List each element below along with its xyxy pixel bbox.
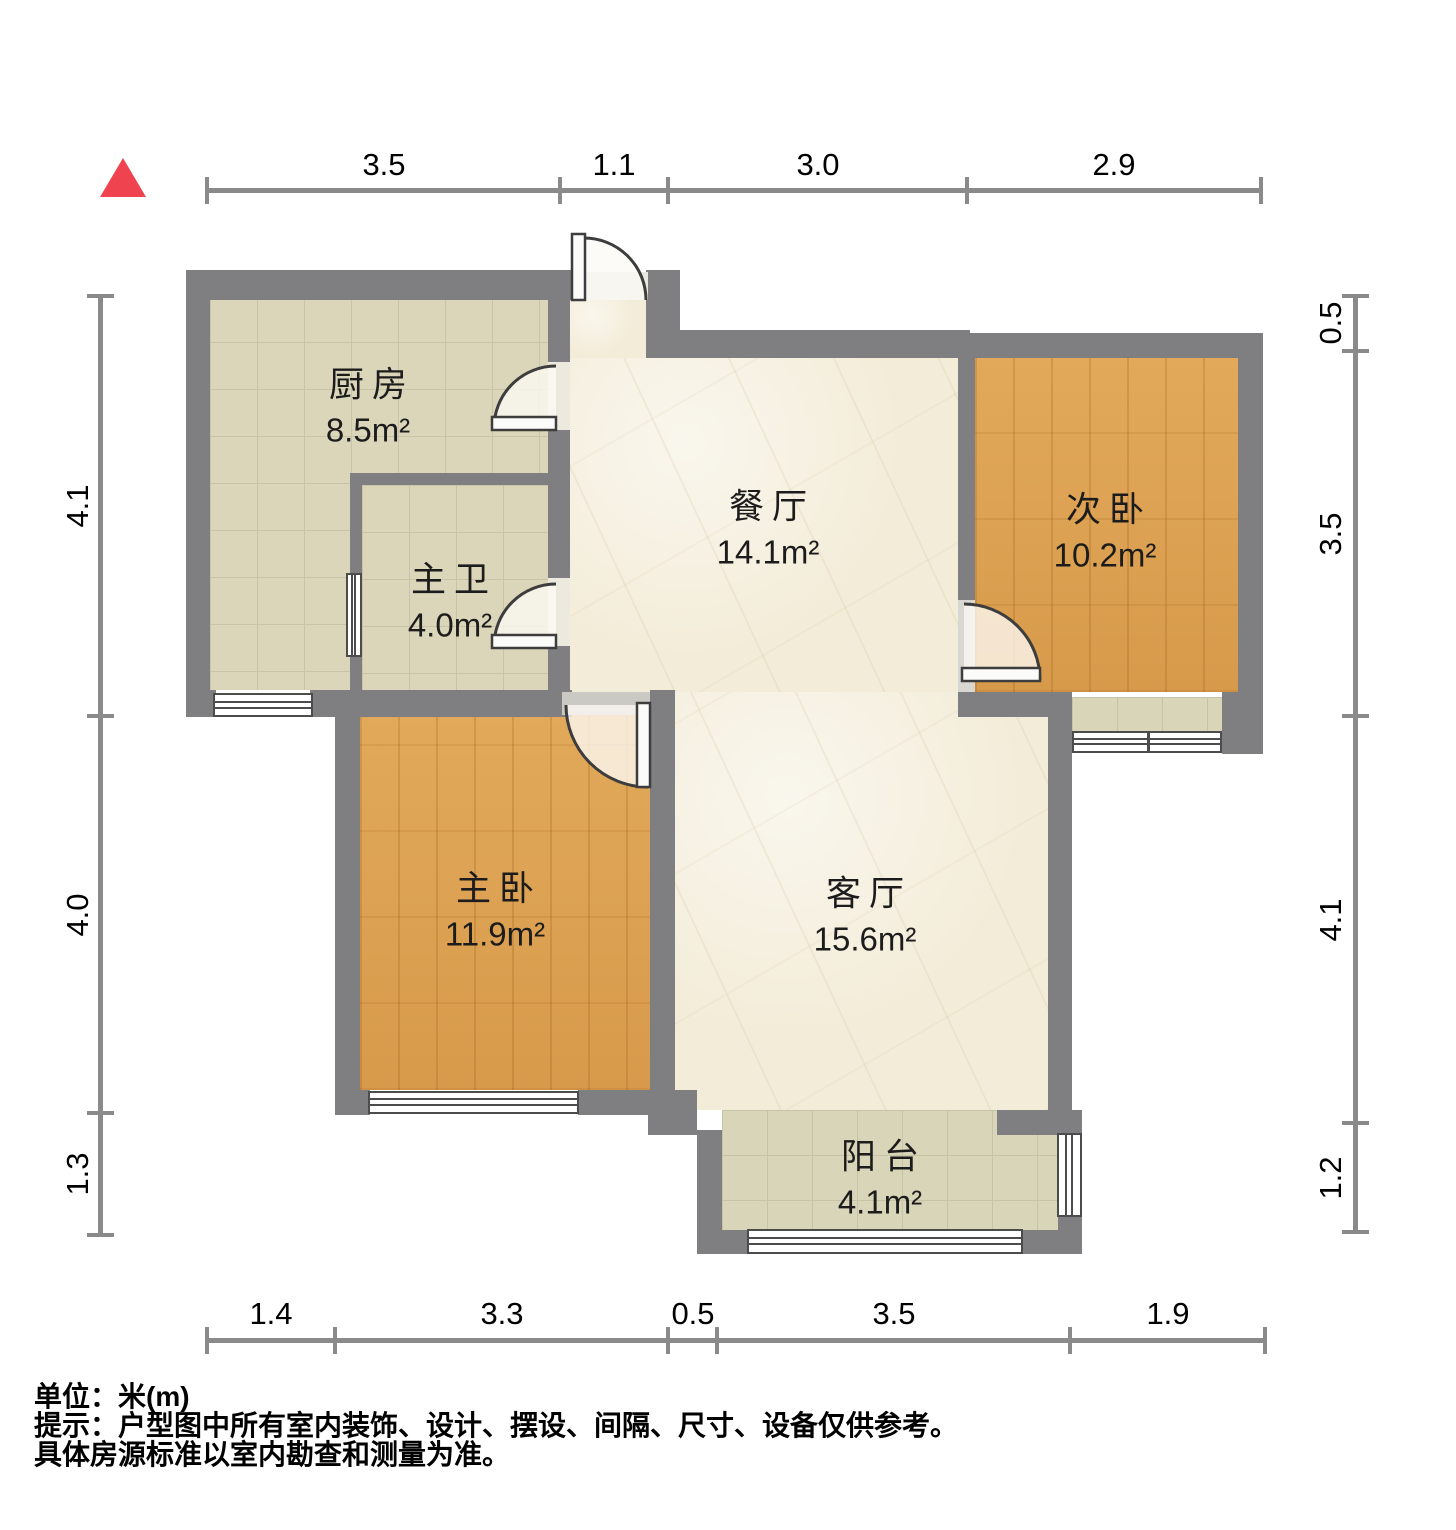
dim-label: 3.5 <box>872 1296 915 1332</box>
dim-tick <box>205 177 209 204</box>
wall-segment <box>335 690 360 1115</box>
dim-tick <box>1259 177 1263 204</box>
dim-line-right <box>1353 296 1358 1232</box>
dim-line-bottom <box>207 1338 1265 1343</box>
room-label-dining: 餐厅 14.1m² <box>717 479 820 572</box>
window-master-bedroom <box>368 1091 579 1114</box>
door-opening <box>548 578 570 646</box>
dim-tick <box>1342 294 1369 298</box>
room-label-second-bedroom: 次卧 10.2m² <box>1054 482 1157 575</box>
window-kitchen <box>213 693 313 717</box>
dim-tick <box>1342 1230 1369 1234</box>
room-label-balcony: 阳台 4.1m² <box>833 1129 927 1222</box>
dim-tick <box>558 177 562 204</box>
dim-label: 3.5 <box>1313 512 1349 555</box>
dim-label: 0.5 <box>671 1296 714 1332</box>
dim-label: 3.5 <box>362 147 405 183</box>
room-label-kitchen: 厨房 8.5m² <box>321 357 415 450</box>
wall-segment <box>958 333 1263 358</box>
wall-segment <box>650 690 675 1115</box>
wall-segment <box>1222 692 1263 754</box>
dim-tick <box>87 1111 114 1115</box>
footer-notes: 单位：米(m) 提示：户型图中所有室内装饰、设计、摆设、间隔、尺寸、设备仅供参考… <box>34 1382 958 1469</box>
wall-segment <box>186 690 216 717</box>
dim-label: 4.1 <box>1313 898 1349 941</box>
dim-tick <box>1342 1121 1369 1125</box>
north-arrow-icon <box>100 158 146 197</box>
dim-line-top <box>207 188 1261 193</box>
dim-tick <box>205 1327 209 1354</box>
floor-bay-window-ledge <box>1072 697 1222 735</box>
dim-tick <box>87 294 114 298</box>
window-balcony-side <box>1057 1133 1082 1217</box>
note-tip-1: 提示：户型图中所有室内装饰、设计、摆设、间隔、尺寸、设备仅供参考。 <box>34 1411 958 1440</box>
dim-label: 1.3 <box>60 1152 96 1195</box>
dim-tick <box>1068 1327 1072 1354</box>
wall-segment <box>697 1230 749 1254</box>
wall-segment <box>1048 692 1072 1122</box>
dim-tick <box>666 177 670 204</box>
wall-segment <box>958 358 975 600</box>
dim-label: 0.5 <box>1313 301 1349 344</box>
room-label-master-bath: 主卫 4.0m² <box>403 552 497 645</box>
wall-segment <box>646 270 680 334</box>
door-opening <box>958 600 975 692</box>
wall-segment <box>1058 1215 1082 1254</box>
wall-segment <box>350 485 362 575</box>
dim-tick <box>666 1327 670 1354</box>
dim-label: 1.4 <box>249 1296 292 1332</box>
dim-tick <box>1263 1327 1267 1354</box>
dim-tick <box>1342 349 1369 353</box>
door-opening <box>572 272 648 300</box>
dim-label: 2.9 <box>1092 147 1135 183</box>
dim-tick <box>965 177 969 204</box>
wall-segment <box>646 330 970 358</box>
wall-segment <box>186 270 210 717</box>
wall-segment <box>548 430 570 578</box>
dim-label: 1.2 <box>1313 1156 1349 1199</box>
dim-line-left <box>98 296 103 1235</box>
wall-segment <box>1238 333 1263 717</box>
dim-tick <box>87 1233 114 1237</box>
note-unit: 单位：米(m) <box>34 1382 958 1411</box>
window-master-bath <box>346 573 362 657</box>
wall-segment <box>350 655 362 690</box>
dim-label: 1.9 <box>1146 1296 1189 1332</box>
window-bay-second-bedroom <box>1072 731 1222 753</box>
dim-label: 1.1 <box>592 147 635 183</box>
dim-tick <box>1342 714 1369 718</box>
room-label-master-bedroom: 主卧 11.9m² <box>445 861 545 954</box>
wall-segment <box>548 270 570 362</box>
dim-tick <box>333 1327 337 1354</box>
dim-tick <box>87 714 114 718</box>
floorplan-canvas: 3.5 1.1 3.0 2.9 1.4 3.3 0.5 3.5 1.9 4.1 … <box>0 0 1456 1530</box>
note-tip-2: 具体房源标准以室内勘查和测量为准。 <box>34 1440 958 1469</box>
door-opening <box>562 692 650 715</box>
floor-entry <box>570 300 646 360</box>
wall-segment <box>186 270 572 300</box>
wall-segment <box>648 1090 697 1135</box>
dim-label: 3.3 <box>480 1296 523 1332</box>
dim-label: 3.0 <box>796 147 839 183</box>
wall-segment <box>350 473 560 485</box>
dim-label: 4.0 <box>60 893 96 936</box>
window-balcony <box>747 1229 1023 1254</box>
window-mullion <box>1147 733 1150 751</box>
wall-segment <box>335 1090 370 1115</box>
dim-label: 4.1 <box>60 484 96 527</box>
door-opening <box>548 362 570 430</box>
dim-tick <box>715 1327 719 1354</box>
room-label-living: 客厅 15.6m² <box>814 866 917 959</box>
